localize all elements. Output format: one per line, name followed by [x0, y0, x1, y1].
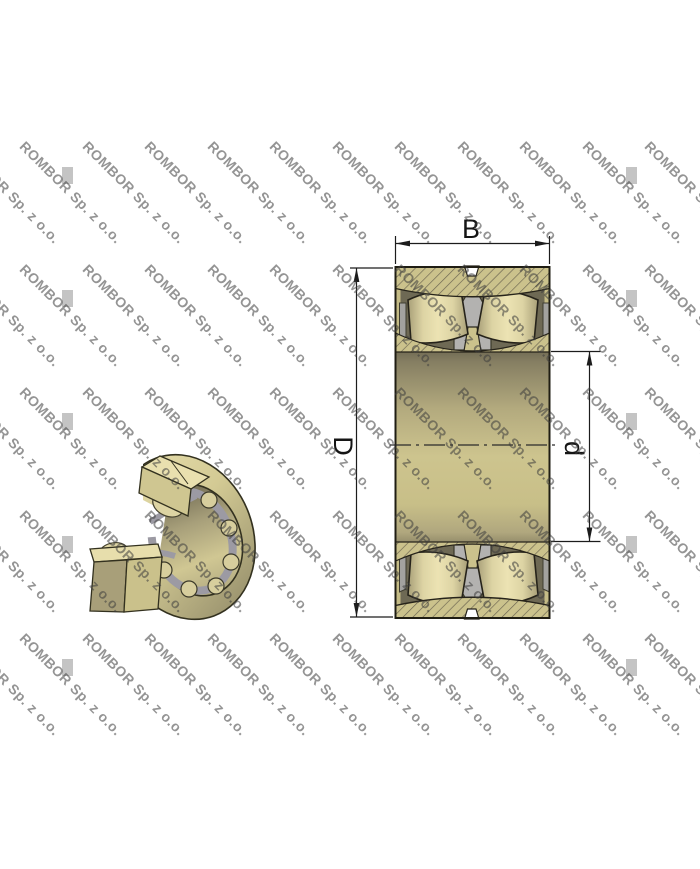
dim-B-arrow-left — [396, 241, 411, 247]
dim-B-arrow-right — [535, 241, 550, 247]
bore-surface — [396, 352, 550, 542]
dim-D-label: D — [328, 436, 358, 456]
bearing-drawing: B D d — [0, 0, 700, 869]
dimension-B: B — [396, 214, 550, 264]
bearing-section-view — [390, 266, 557, 619]
product-technical-image: B D d ROMBOR Sp. z o.o.ROMBOR Sp. z o.o.… — [0, 0, 700, 869]
dim-d-arrow-bottom — [587, 528, 593, 542]
dim-B-label: B — [462, 214, 480, 244]
dim-D-arrow-bottom — [354, 603, 360, 617]
lower-block-front-face-right — [124, 557, 162, 612]
dim-D-arrow-top — [354, 268, 360, 282]
dimension-d: d — [551, 352, 601, 542]
dimension-D: D — [328, 268, 393, 617]
bearing-3d-view — [90, 455, 258, 620]
dim-d-arrow-top — [587, 352, 593, 366]
lower-block-front-face-left — [90, 560, 127, 612]
dim-d-label: d — [559, 441, 589, 456]
